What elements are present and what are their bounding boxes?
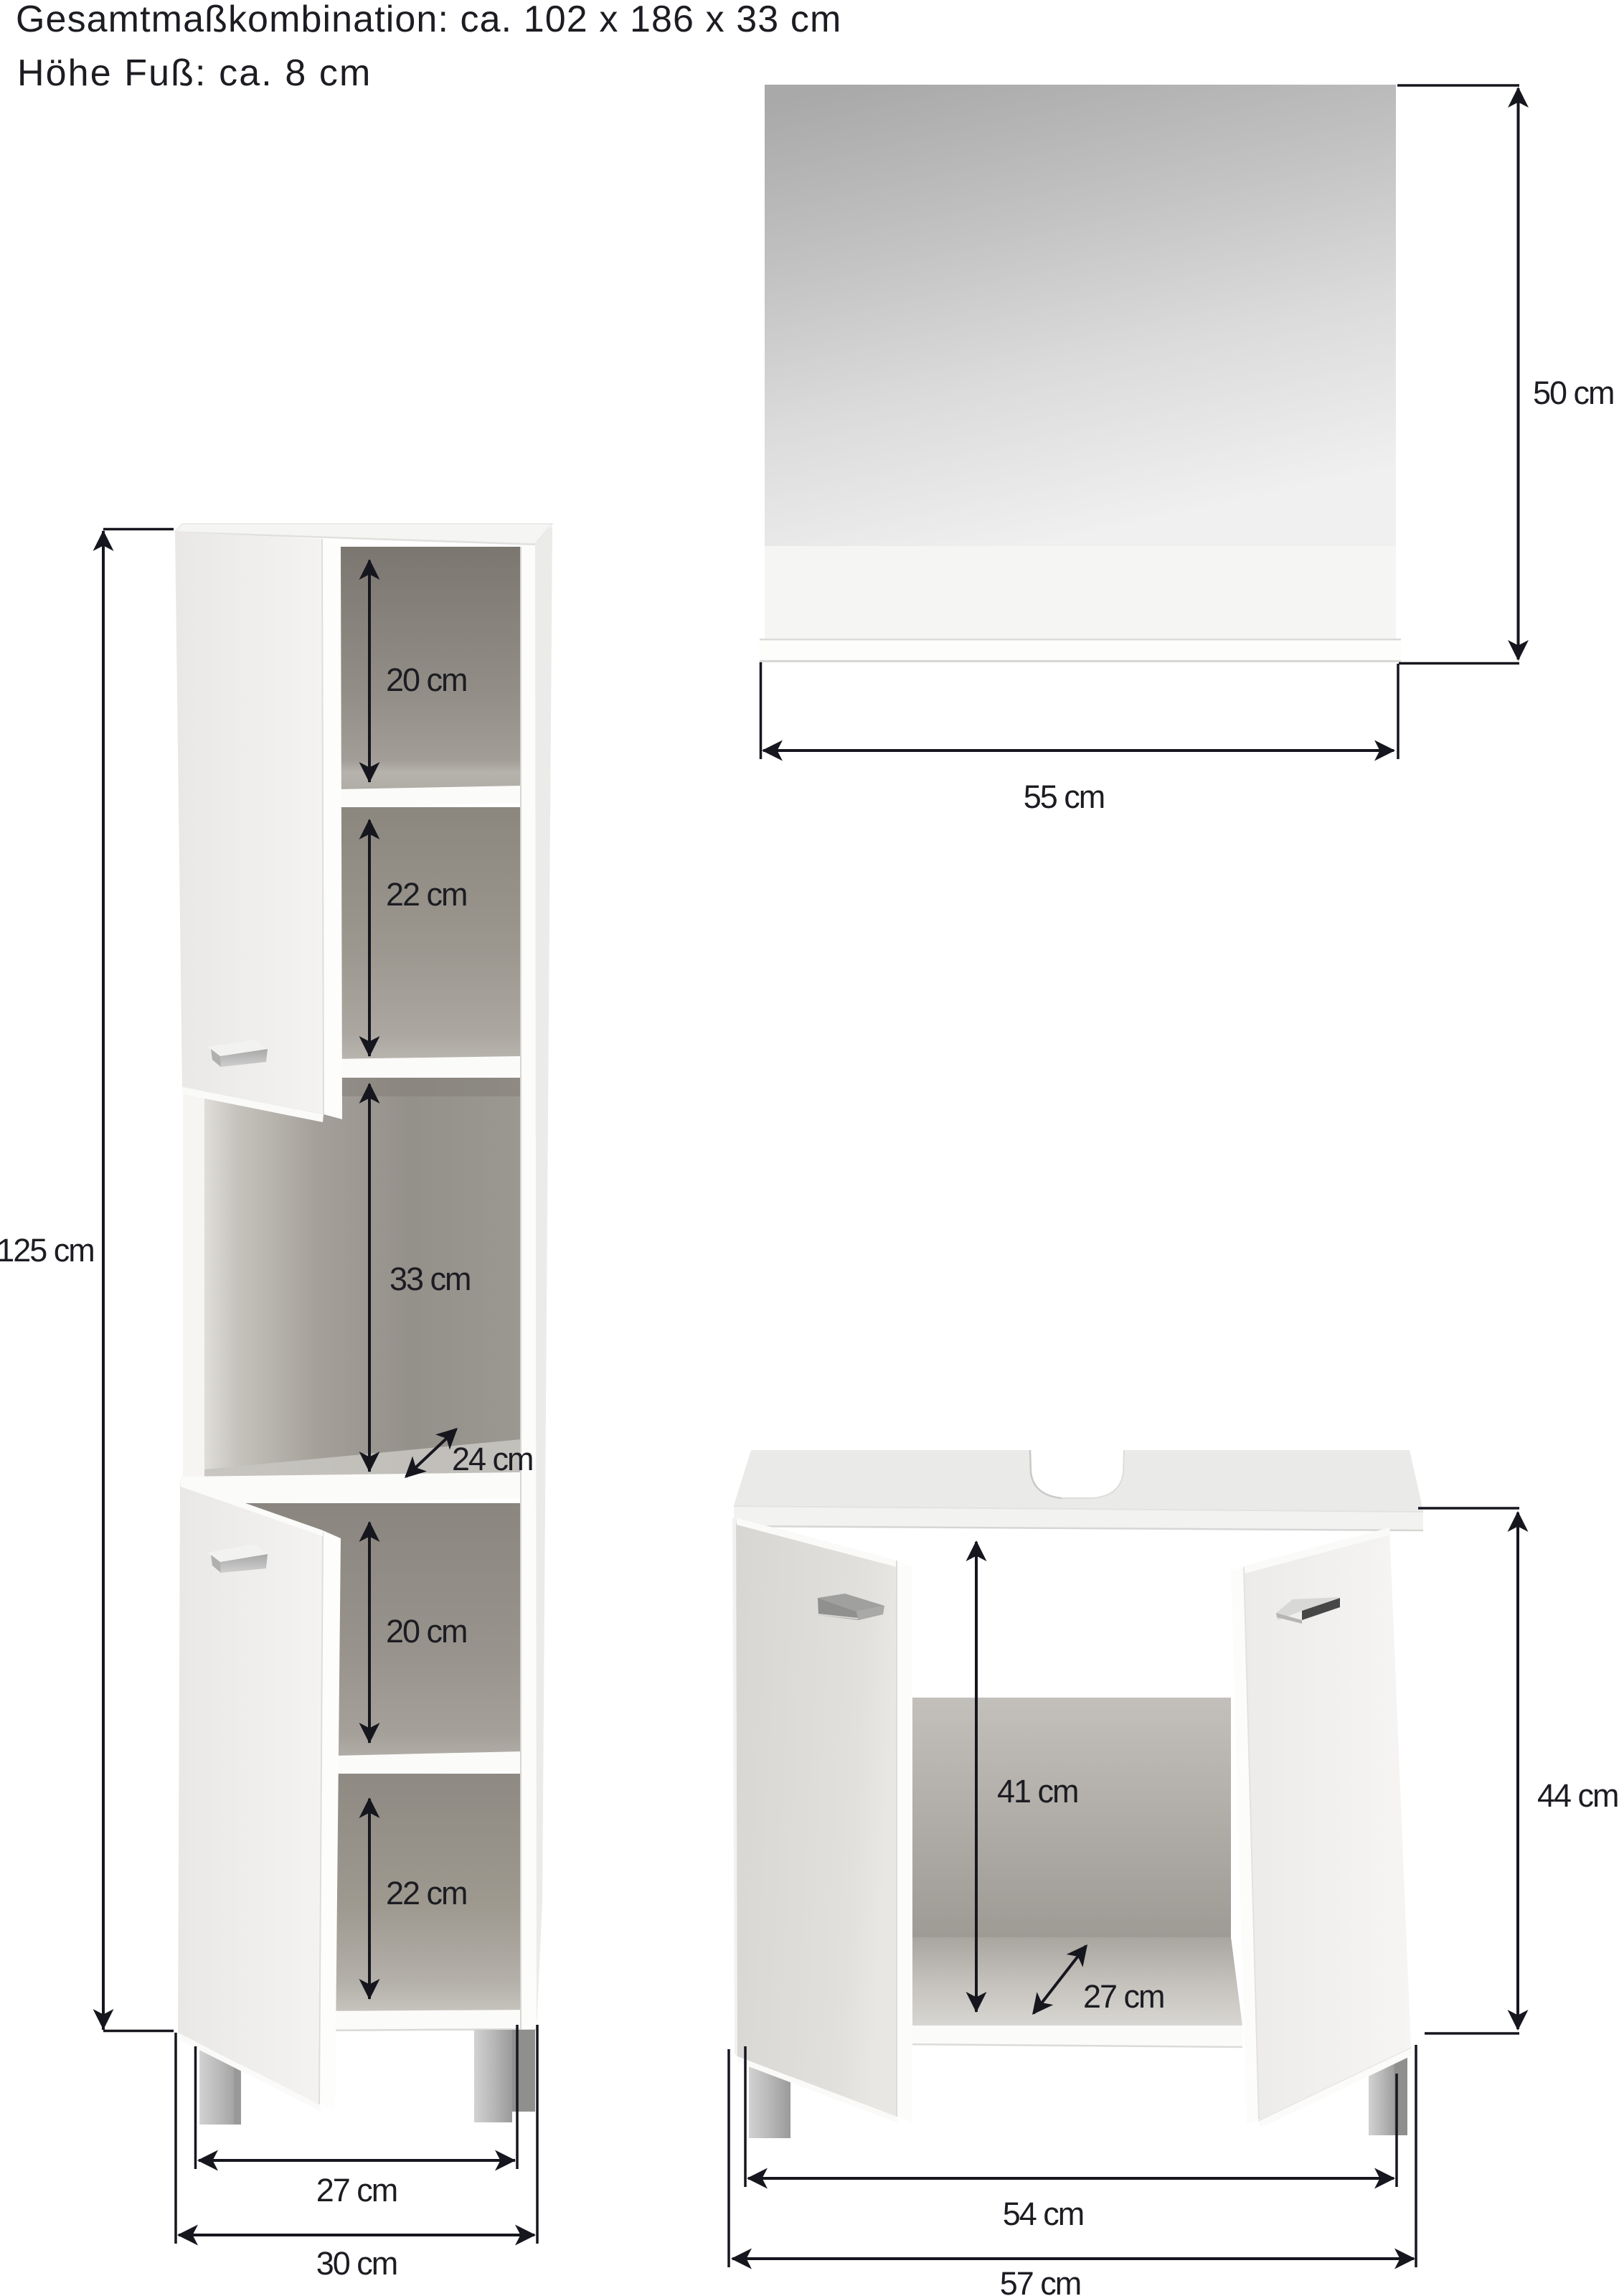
svg-text:30 cm: 30 cm [316,2245,397,2282]
svg-text:27 cm: 27 cm [1083,1978,1164,2015]
svg-text:55 cm: 55 cm [1024,778,1105,815]
svg-text:22 cm: 22 cm [386,876,467,913]
svg-text:44 cm: 44 cm [1537,1777,1618,1814]
svg-text:33 cm: 33 cm [390,1261,471,1297]
svg-text:57 cm: 57 cm [1000,2265,1081,2296]
svg-text:Gesamtmaßkombination: ca. 102: Gesamtmaßkombination: ca. 102 x 186 x 33… [16,0,841,40]
svg-text:Höhe Fuß: ca. 8 cm: Höhe Fuß: ca. 8 cm [17,52,372,94]
svg-text:20 cm: 20 cm [386,662,467,698]
svg-text:27 cm: 27 cm [316,2172,397,2208]
svg-text:20 cm: 20 cm [386,1613,467,1650]
svg-text:54 cm: 54 cm [1003,2196,1084,2232]
svg-text:24 cm: 24 cm [452,1441,533,1477]
svg-text:22 cm: 22 cm [386,1875,467,1911]
svg-text:50 cm: 50 cm [1533,375,1614,411]
svg-text:125 cm: 125 cm [0,1232,94,1269]
svg-text:41 cm: 41 cm [997,1773,1078,1810]
